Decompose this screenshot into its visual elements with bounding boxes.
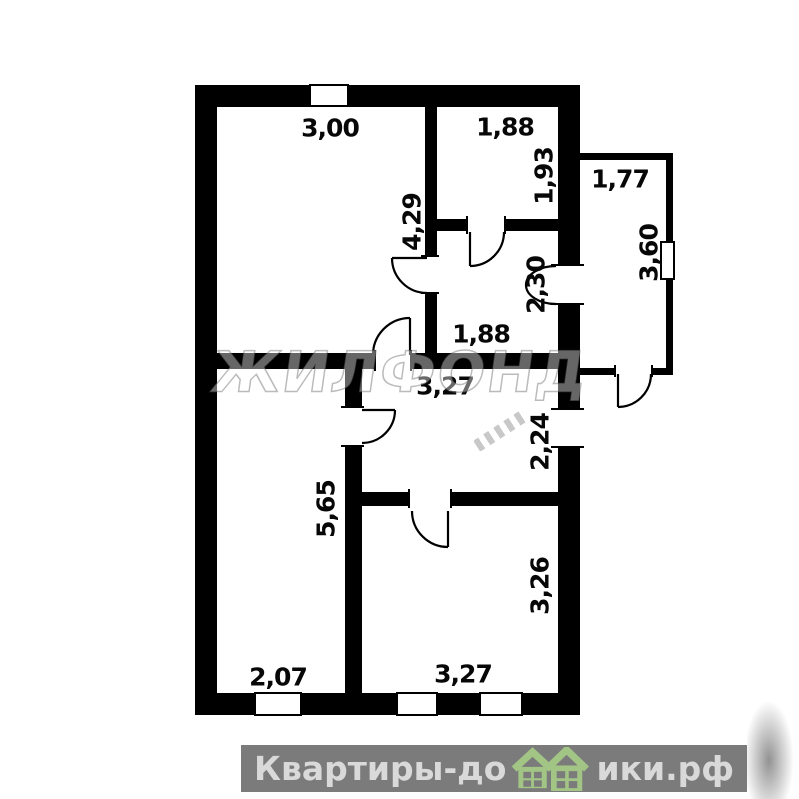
- brand-text-left: Квартиры-до: [254, 752, 506, 785]
- door-arc-bottomright: [412, 511, 448, 547]
- dim-top-right-room-width: 1,88: [476, 113, 534, 142]
- dim-bottom-left-room-height: 5,65: [312, 480, 341, 538]
- floor-plan-image: 3,00 1,88 1,93 1,77 4,29 3,60 2,30 1,88 …: [0, 0, 799, 799]
- corner-gradient-blob: [747, 670, 799, 799]
- dim-top-left-room-height: 4,29: [398, 193, 427, 251]
- dim-top-right-room-height: 1,93: [530, 147, 559, 205]
- zhilfond-watermark: ЖИЛФОНД: [208, 341, 593, 406]
- door-arc-bottomleft: [362, 410, 395, 443]
- door-arc-annex-exit: [618, 374, 651, 407]
- door-arc-topright: [470, 232, 504, 266]
- dim-annex-width: 1,77: [591, 165, 649, 194]
- dim-mid-right-room-height: 2,30: [522, 256, 551, 314]
- dim-hallway-height: 2,24: [526, 413, 555, 471]
- dim-bottom-right-room-height: 3,26: [526, 557, 555, 615]
- brand-text-right: ики.рф: [596, 752, 734, 785]
- dim-top-left-room-width: 3,00: [301, 114, 359, 143]
- houses-icon: [507, 747, 595, 791]
- dim-bottom-right-room-width: 3,27: [434, 660, 492, 689]
- footer-watermark-bar: Квартиры-до ики.рф: [241, 745, 747, 792]
- dim-bottom-left-room-width: 2,07: [249, 663, 307, 692]
- door-arc-topleft: [392, 258, 427, 293]
- dim-annex-height: 3,60: [635, 224, 664, 282]
